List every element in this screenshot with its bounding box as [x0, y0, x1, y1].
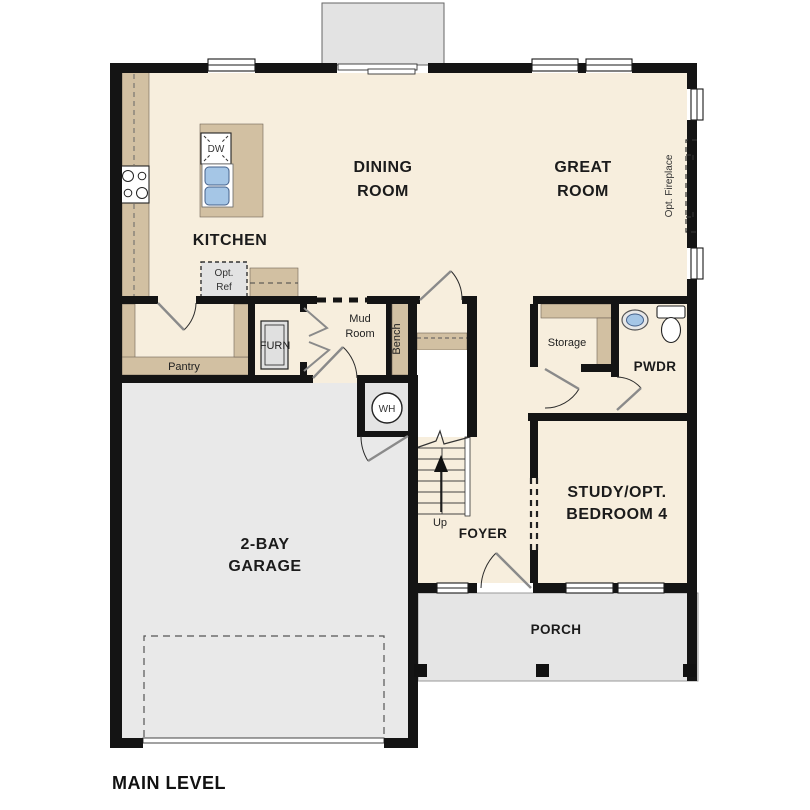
opt-ref-label-1: Opt.	[215, 268, 234, 279]
closet-shelf	[417, 333, 467, 350]
window	[618, 583, 664, 593]
powder-sink-icon	[622, 310, 648, 330]
storage-label: Storage	[548, 337, 587, 349]
garage-door-panel	[143, 738, 384, 743]
dining-label-1: DINING	[354, 159, 413, 176]
bench-label: Bench	[391, 323, 403, 354]
great-label-1: GREAT	[554, 159, 611, 176]
window	[586, 59, 632, 71]
kitchen-label: KITCHEN	[193, 232, 268, 249]
opt-fireplace-label: Opt. Fireplace	[664, 154, 675, 217]
dining-label-2: ROOM	[357, 183, 409, 200]
window	[691, 89, 703, 120]
dw-label: DW	[208, 144, 225, 155]
study-label-1: STUDY/OPT.	[567, 484, 666, 501]
mudroom-label-2: Room	[345, 328, 374, 340]
window	[208, 59, 255, 71]
opt-ref-label-2: Ref	[216, 282, 232, 293]
porch-label: PORCH	[531, 622, 582, 637]
great-label-2: ROOM	[557, 183, 609, 200]
stove-icon	[120, 166, 149, 203]
garage-label-1: 2-BAY	[240, 536, 289, 553]
porch-floor	[418, 593, 698, 681]
wh-label: WH	[379, 404, 396, 415]
floor-plan-page: KITCHEN DINING ROOM GREAT ROOM STUDY/OPT…	[0, 0, 810, 810]
window	[691, 248, 703, 279]
sliding-door	[338, 64, 417, 74]
furn-label: FURN	[260, 340, 291, 352]
foyer-label: FOYER	[459, 526, 508, 541]
mudroom-label-1: Mud	[349, 313, 370, 325]
kitchen-sink-icon	[202, 164, 233, 207]
plan-title: MAIN LEVEL	[112, 773, 226, 793]
garage-label-2: GARAGE	[228, 558, 301, 575]
pwdr-label: PWDR	[634, 359, 677, 374]
window	[532, 59, 578, 71]
patio-bumpout	[322, 3, 444, 65]
floor-plan: KITCHEN DINING ROOM GREAT ROOM STUDY/OPT…	[0, 0, 810, 810]
window	[566, 583, 613, 593]
pantry-label: Pantry	[168, 361, 200, 373]
understair-closet	[417, 350, 467, 437]
up-label: Up	[433, 517, 447, 529]
window	[437, 583, 468, 593]
study-label-2: BEDROOM 4	[566, 506, 667, 523]
